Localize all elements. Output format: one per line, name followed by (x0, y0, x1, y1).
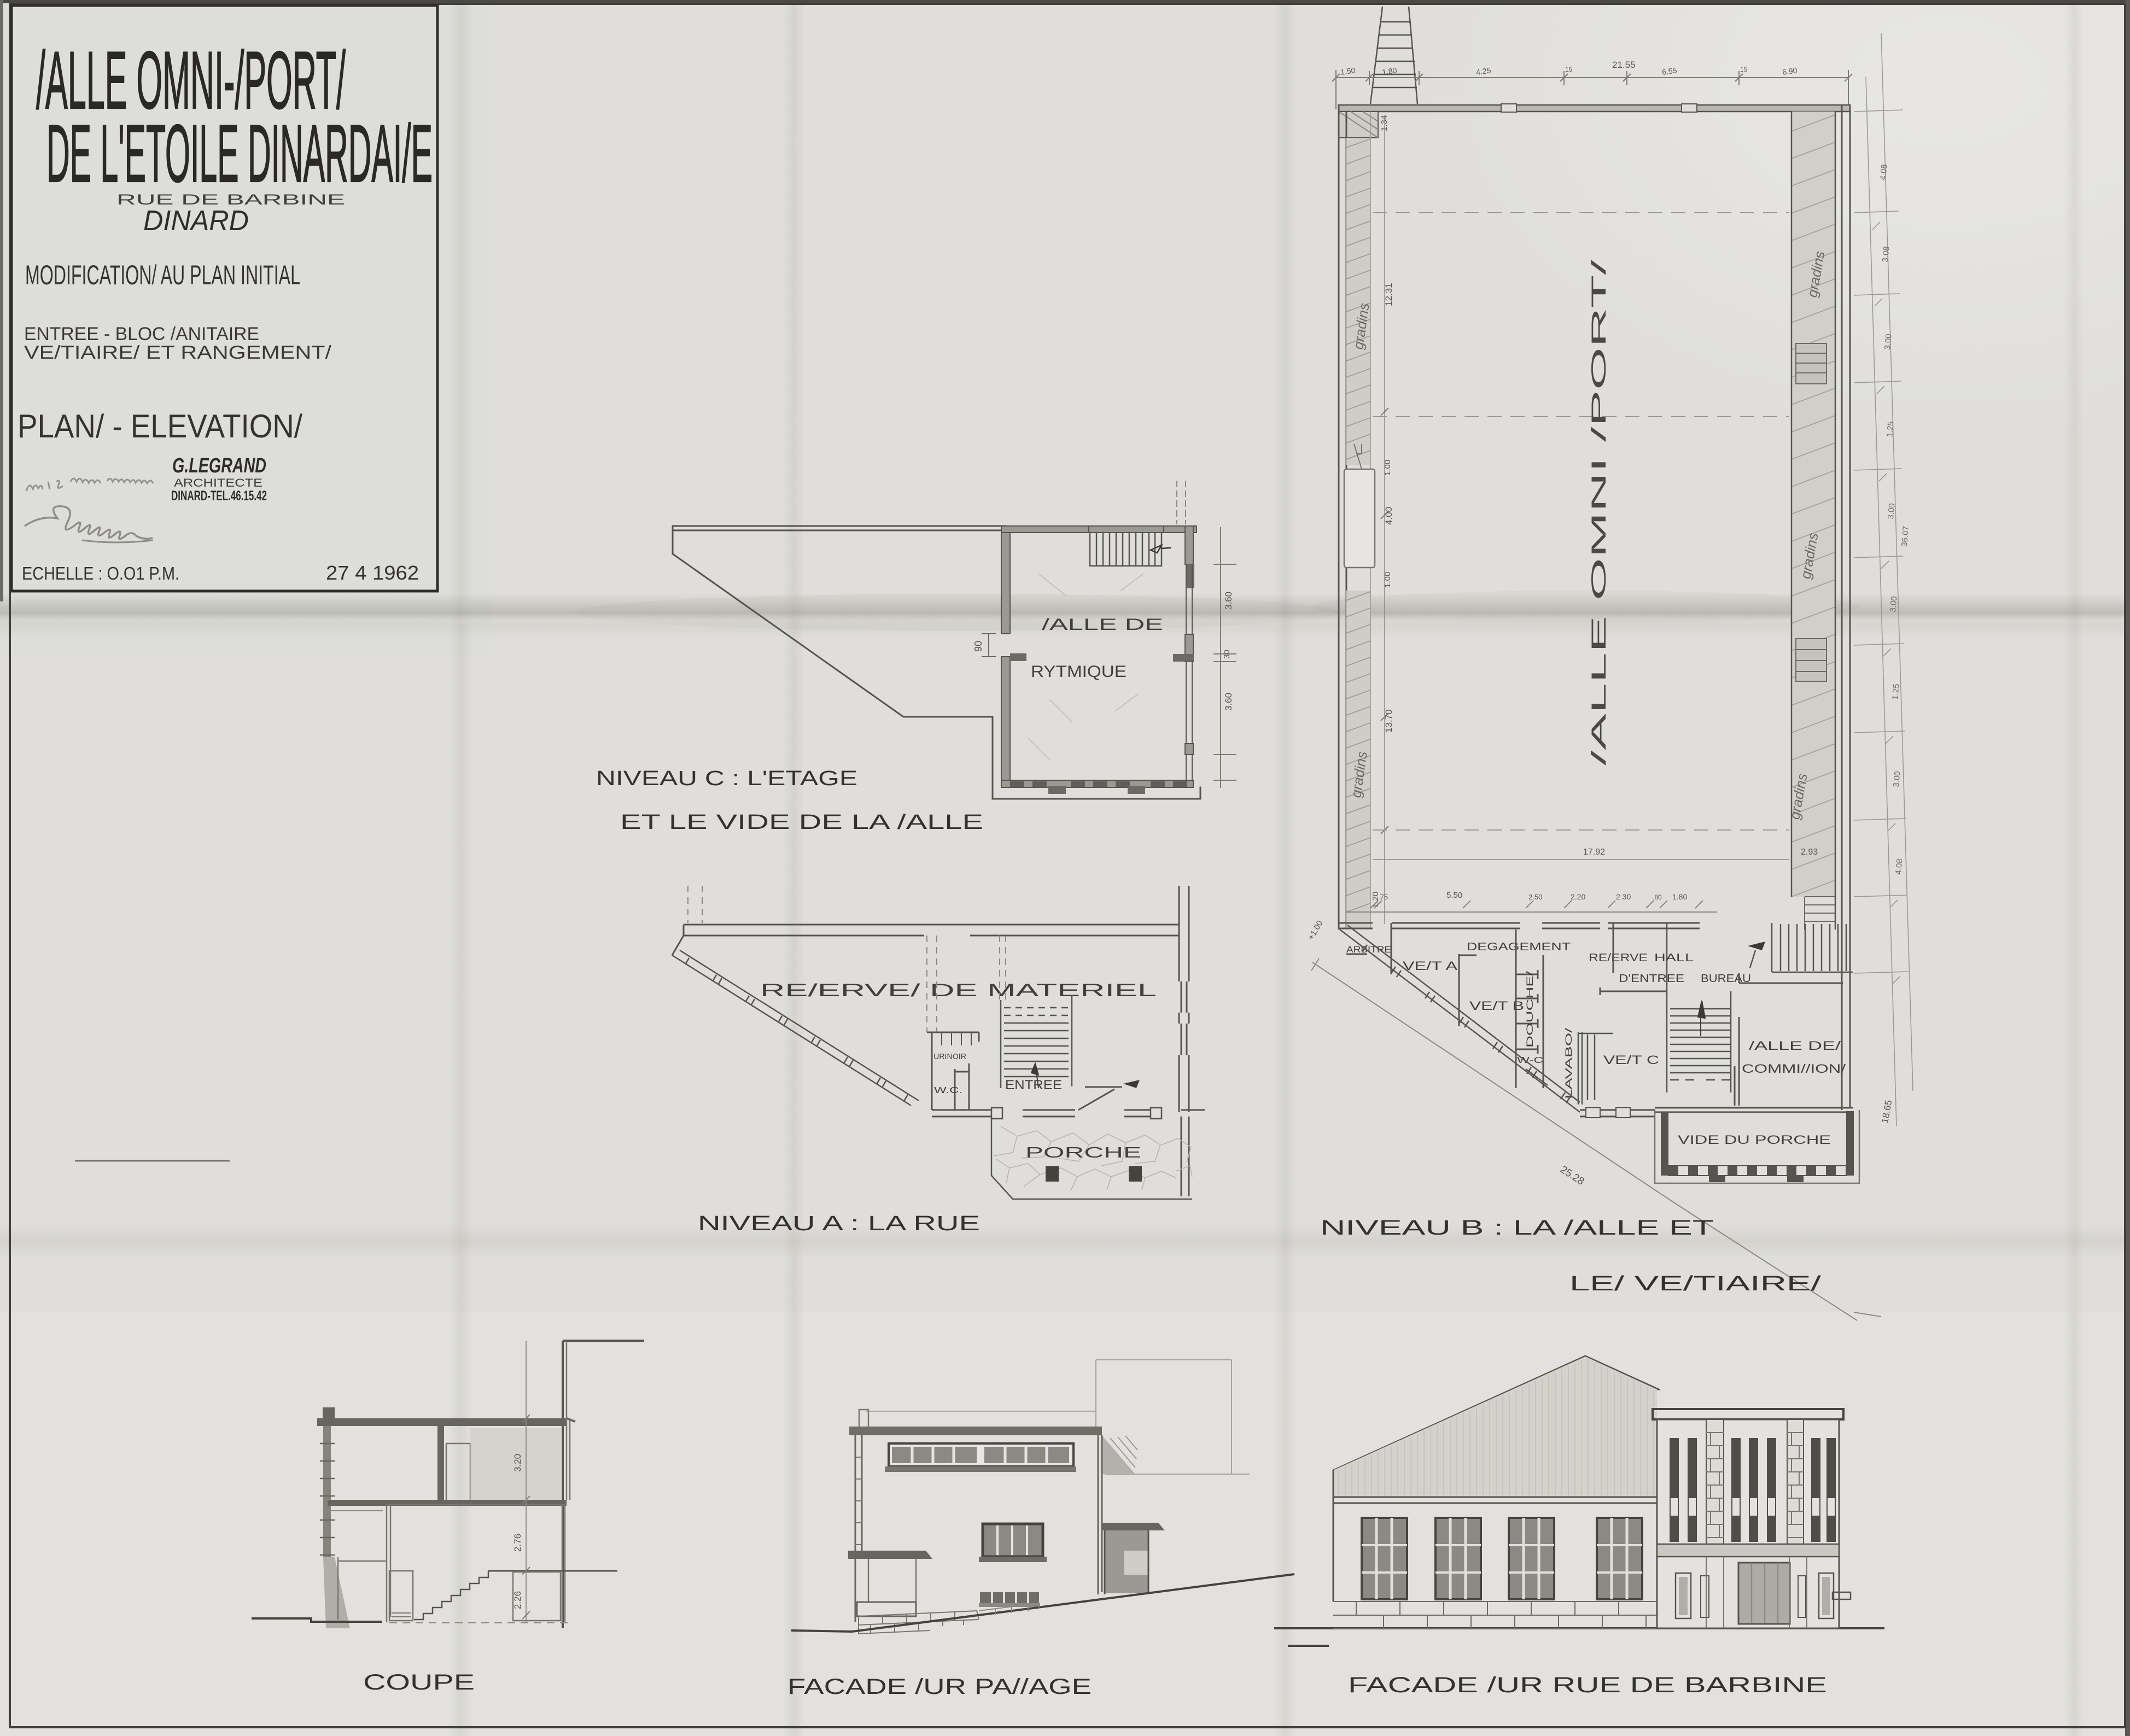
svg-text:VIDE DU PORCHE: VIDE DU PORCHE (1678, 1133, 1831, 1147)
svg-text:LAVABO/: LAVABO/ (1563, 1027, 1574, 1099)
svg-text:ENTREE: ENTREE (1005, 1078, 1062, 1092)
svg-text:4.08: 4.08 (1894, 858, 1904, 875)
svg-text:36.07: 36.07 (1900, 525, 1911, 547)
svg-text:DE L'ETOILE DINARDAI/E: DE L'ETOILE DINARDAI/E (46, 108, 433, 199)
svg-text:PLAN/ - ELEVATION/: PLAN/ - ELEVATION/ (17, 408, 302, 445)
svg-text:.75: .75 (1378, 893, 1388, 901)
svg-text:3.00: 3.00 (1886, 503, 1896, 520)
svg-text:.80: .80 (1653, 893, 1662, 901)
svg-text:W.C.: W.C. (934, 1086, 962, 1095)
svg-text:HALL: HALL (1654, 952, 1694, 964)
svg-text:15: 15 (1740, 66, 1748, 73)
svg-text:21.55: 21.55 (1612, 60, 1636, 70)
svg-text:D'ENTREE: D'ENTREE (1619, 973, 1684, 985)
svg-text:3.00: 3.00 (1883, 334, 1893, 350)
svg-text:NIVEAU B : LA /ALLE ET: NIVEAU B : LA /ALLE ET (1320, 1217, 1714, 1240)
svg-text:RE/ERVE: RE/ERVE (1589, 952, 1648, 964)
svg-text:/ALLE OMNI /PORT/: /ALLE OMNI /PORT/ (1588, 259, 1610, 765)
svg-text:27 4 1962: 27 4 1962 (326, 562, 419, 584)
svg-text:3.00: 3.00 (1888, 596, 1899, 613)
svg-text:VE/T C: VE/T C (1603, 1053, 1659, 1067)
svg-text:3.20: 3.20 (512, 1454, 523, 1472)
svg-text:3.08: 3.08 (1881, 246, 1891, 263)
svg-text:VE/T A: VE/T A (1403, 959, 1457, 973)
svg-text:VE/TIAIRE/ ET RANGEMENT/: VE/TIAIRE/ ET RANGEMENT/ (24, 342, 332, 363)
svg-text:1.25: 1.25 (1885, 421, 1895, 438)
svg-text:ARCHITECTE: ARCHITECTE (174, 477, 262, 489)
svg-text:15: 15 (1565, 66, 1573, 73)
svg-text:NIVEAU A : LA RUE: NIVEAU A : LA RUE (698, 1212, 980, 1235)
svg-text:/ALLE DE: /ALLE DE (1042, 616, 1163, 634)
svg-text:DINARD: DINARD (143, 205, 249, 237)
svg-text:ECHELLE : O.O1 P.M.: ECHELLE : O.O1 P.M. (22, 563, 179, 583)
svg-text:1.25: 1.25 (1890, 683, 1901, 700)
svg-text:RYTMIQUE: RYTMIQUE (1031, 663, 1127, 681)
svg-text:1.00: 1.00 (1383, 460, 1392, 476)
svg-text:4.00: 4.00 (1384, 507, 1394, 525)
svg-text:1.80: 1.80 (1672, 892, 1687, 901)
svg-text:NIVEAU C : L'ETAGE: NIVEAU C : L'ETAGE (596, 767, 857, 790)
svg-text:COUPE: COUPE (363, 1670, 475, 1694)
svg-text:13.70: 13.70 (1384, 709, 1394, 733)
svg-text:ET LE VIDE DE LA /ALLE: ET LE VIDE DE LA /ALLE (620, 811, 983, 834)
svg-text:2.26: 2.26 (512, 1591, 523, 1609)
svg-text:G.LEGRAND: G.LEGRAND (172, 454, 266, 477)
svg-text:5.50: 5.50 (1446, 891, 1462, 900)
svg-text:3.60: 3.60 (1223, 592, 1234, 610)
svg-text:2.20: 2.20 (1571, 892, 1585, 901)
svg-text:3.00: 3.00 (1892, 771, 1902, 788)
svg-text:PORCHE: PORCHE (1025, 1144, 1141, 1161)
svg-text:2.50: 2.50 (1528, 893, 1542, 901)
svg-text:3.60: 3.60 (1223, 693, 1234, 711)
svg-text:2.76: 2.76 (512, 1534, 523, 1552)
svg-text:/ALLE DE/: /ALLE DE/ (1749, 1039, 1841, 1053)
svg-text:2.93: 2.93 (1801, 847, 1818, 857)
svg-text:17.92: 17.92 (1583, 847, 1605, 857)
svg-text:DINARD-TEL.46.15.42: DINARD-TEL.46.15.42 (171, 488, 267, 504)
svg-text:FACADE /UR PA//AGE: FACADE /UR PA//AGE (787, 1675, 1092, 1699)
svg-text:1.00: 1.00 (1383, 572, 1392, 588)
svg-text:DEGAGEMENT: DEGAGEMENT (1467, 941, 1571, 953)
svg-text:2.30: 2.30 (1616, 892, 1631, 901)
svg-text:FACADE /UR RUE DE BARBINE: FACADE /UR RUE DE BARBINE (1348, 1673, 1827, 1697)
svg-text:RE/ERVE/ DE MATERIEL: RE/ERVE/ DE MATERIEL (760, 980, 1157, 1000)
svg-text:LE/ VE/TIAIRE/: LE/ VE/TIAIRE/ (1569, 1272, 1822, 1295)
svg-text:MODIFICATION/ AU PLAN INITIAL: MODIFICATION/ AU PLAN INITIAL (25, 260, 300, 290)
svg-text:URINOIR: URINOIR (933, 1052, 966, 1061)
svg-text:12.31: 12.31 (1384, 283, 1394, 306)
svg-text:DOUCHE/: DOUCHE/ (1525, 971, 1535, 1048)
svg-text:90: 90 (973, 641, 984, 652)
svg-text:30: 30 (1222, 650, 1232, 659)
svg-text:4.08: 4.08 (1878, 164, 1889, 181)
svg-text:COMMI//ION/: COMMI//ION/ (1742, 1062, 1846, 1075)
svg-text:ENTREE - BLOC /ANITAIRE: ENTREE - BLOC /ANITAIRE (24, 324, 259, 344)
